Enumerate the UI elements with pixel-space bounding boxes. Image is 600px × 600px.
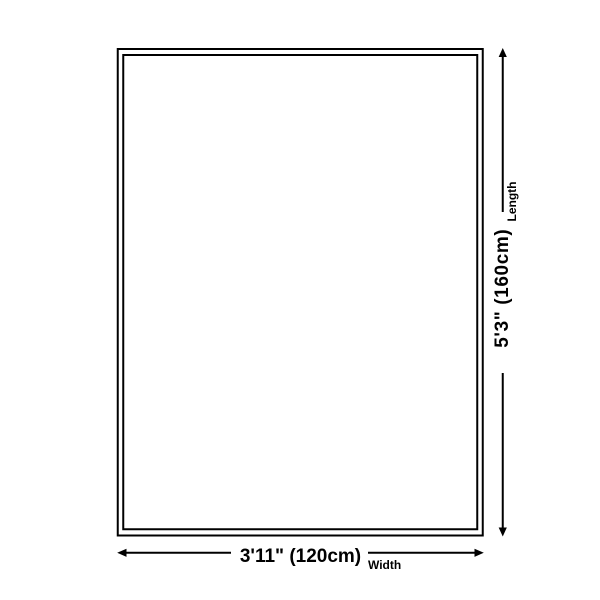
svg-text:5'3" (160cm): 5'3" (160cm)	[492, 229, 513, 348]
svg-text:Width: Width	[368, 558, 401, 572]
svg-text:3'11" (120cm): 3'11" (120cm)	[240, 546, 361, 567]
svg-text:Length: Length	[505, 182, 519, 222]
